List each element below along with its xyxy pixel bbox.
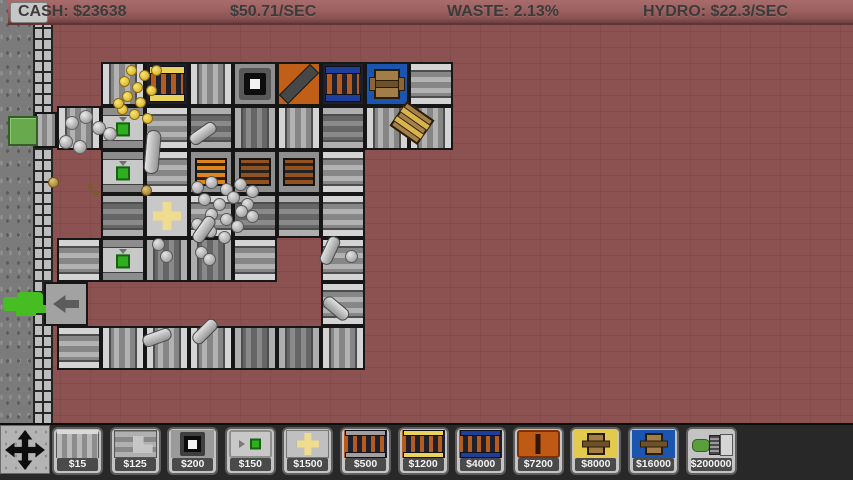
cash-label: CASH: $23638 xyxy=(18,3,127,21)
tile-conveyor[interactable] xyxy=(233,238,277,282)
metal-ball xyxy=(246,185,259,198)
shop-price: $500 xyxy=(345,458,386,471)
shop-button-smelter[interactable]: $7200 xyxy=(513,427,564,475)
ore-stone xyxy=(103,127,117,141)
importer-icon xyxy=(229,430,272,458)
hydro-generator-icon xyxy=(690,430,733,458)
shop-button-furnace[interactable]: $500 xyxy=(340,427,391,475)
move-arrows-icon xyxy=(4,429,46,471)
income-rate-label: $50.71/SEC xyxy=(230,3,316,21)
metal-ball xyxy=(205,176,218,189)
shop-button-conveyor[interactable]: $15 xyxy=(52,427,103,475)
coin xyxy=(151,65,162,76)
tile-conveyor[interactable] xyxy=(321,326,365,370)
blue-furnace-icon xyxy=(459,430,502,458)
tile-cool-rack[interactable] xyxy=(277,150,321,194)
crate-packer-icon xyxy=(574,430,617,458)
shop-price: $8000 xyxy=(575,458,616,471)
coin xyxy=(139,70,150,81)
gold-ball xyxy=(48,177,59,188)
metal-ball xyxy=(246,210,259,223)
gold-ball xyxy=(141,185,152,196)
tile-smelter[interactable] xyxy=(277,62,321,106)
coin xyxy=(135,97,146,108)
furnace-icon xyxy=(344,430,387,458)
shop-price: $4000 xyxy=(460,458,501,471)
tile-conveyor[interactable] xyxy=(321,194,365,238)
shop-button-importer[interactable]: $150 xyxy=(225,427,276,475)
metal-ball xyxy=(218,231,231,244)
tile-exit-chute[interactable] xyxy=(44,282,88,326)
shop-price: $7200 xyxy=(518,458,559,471)
waste-label: WASTE: 2.13% xyxy=(447,3,559,21)
shop-price: $200 xyxy=(172,458,213,471)
press-icon xyxy=(286,430,329,458)
coin xyxy=(126,65,137,76)
shop-price: $125 xyxy=(115,458,156,471)
tile-conveyor[interactable] xyxy=(189,62,233,106)
tile-conveyor[interactable] xyxy=(321,106,365,150)
shop-button-blue-furnace[interactable]: $4000 xyxy=(455,427,506,475)
tile-wall-block[interactable] xyxy=(233,62,277,106)
rock-ground-strip xyxy=(0,0,33,480)
coin xyxy=(142,113,153,124)
metal-ball xyxy=(227,191,240,204)
shop-button-crate-packer[interactable]: $8000 xyxy=(570,427,621,475)
delivery-truck-icon[interactable] xyxy=(2,287,48,319)
tile-conveyor[interactable] xyxy=(233,106,277,150)
conveyor-icon xyxy=(56,430,99,458)
metal-ball xyxy=(203,253,216,266)
coin xyxy=(113,98,124,109)
metal-ball xyxy=(191,181,204,194)
wall-block-icon xyxy=(171,430,214,458)
coin xyxy=(146,85,157,96)
tile-conveyor[interactable] xyxy=(101,194,145,238)
shop-price: $1500 xyxy=(287,458,328,471)
conveyor-corner-icon xyxy=(114,430,157,458)
shop-button-conveyor-corner[interactable]: $125 xyxy=(110,427,161,475)
metal-ball xyxy=(345,250,358,263)
shop-price: $150 xyxy=(230,458,271,471)
metal-ball xyxy=(152,238,165,251)
brick-wall xyxy=(33,0,53,480)
metal-ball xyxy=(198,193,211,206)
shop-button-press[interactable]: $1500 xyxy=(282,427,333,475)
tile-importer[interactable] xyxy=(101,238,145,282)
ore-stone xyxy=(65,116,79,130)
tile-conveyor[interactable] xyxy=(57,326,101,370)
tile-blue-furnace[interactable] xyxy=(321,62,365,106)
shop-button-gold-furnace[interactable]: $1200 xyxy=(398,427,449,475)
shop-button-blue-crate-packer[interactable]: $16000 xyxy=(628,427,679,475)
tile-importer[interactable] xyxy=(101,150,145,194)
tile-conveyor[interactable] xyxy=(277,326,321,370)
belt-stub xyxy=(35,112,57,148)
move-tool-button[interactable] xyxy=(0,425,50,474)
hydro-rate-label: HYDRO: $22.3/SEC xyxy=(643,3,788,21)
ore-stone xyxy=(73,140,87,154)
gold-furnace-icon xyxy=(402,430,445,458)
tile-conveyor[interactable] xyxy=(409,62,453,106)
shop-price: $16000 xyxy=(633,458,674,471)
tile-conveyor[interactable] xyxy=(321,150,365,194)
game-stage: CASH: $23638 $50.71/SEC WASTE: 2.13% HYD… xyxy=(0,0,853,480)
tile-conveyor[interactable] xyxy=(233,326,277,370)
coin xyxy=(132,82,143,93)
mine-input-button[interactable] xyxy=(8,116,38,146)
shop-price: $15 xyxy=(57,458,98,471)
tile-conveyor[interactable] xyxy=(101,326,145,370)
tile-press[interactable] xyxy=(145,194,189,238)
metal-bar xyxy=(143,129,162,174)
tile-conveyor[interactable] xyxy=(57,238,101,282)
blue-crate-packer-icon xyxy=(632,430,675,458)
top-status-bar: CASH: $23638 $50.71/SEC WASTE: 2.13% HYD… xyxy=(8,0,853,25)
tile-conveyor[interactable] xyxy=(277,194,321,238)
metal-ball xyxy=(160,250,173,263)
ore-stone xyxy=(79,110,93,124)
waste-dot xyxy=(87,183,93,189)
build-toolbar: $15$125$200$150$1500$500$1200$4000$7200$… xyxy=(0,423,853,480)
shop-price: $200000 xyxy=(691,458,732,471)
coin xyxy=(129,109,140,120)
shop-button-hydro-generator[interactable]: $200000 xyxy=(686,427,737,475)
smelter-icon xyxy=(517,430,560,458)
tile-conveyor[interactable] xyxy=(277,106,321,150)
shop-price: $1200 xyxy=(403,458,444,471)
metal-ball xyxy=(234,178,247,191)
shop-button-wall-block[interactable]: $200 xyxy=(167,427,218,475)
waste-dot xyxy=(93,190,99,196)
ore-stone xyxy=(59,135,73,149)
coin xyxy=(119,76,130,87)
metal-ball xyxy=(231,220,244,233)
tile-blue-crate-packer[interactable] xyxy=(365,62,409,106)
